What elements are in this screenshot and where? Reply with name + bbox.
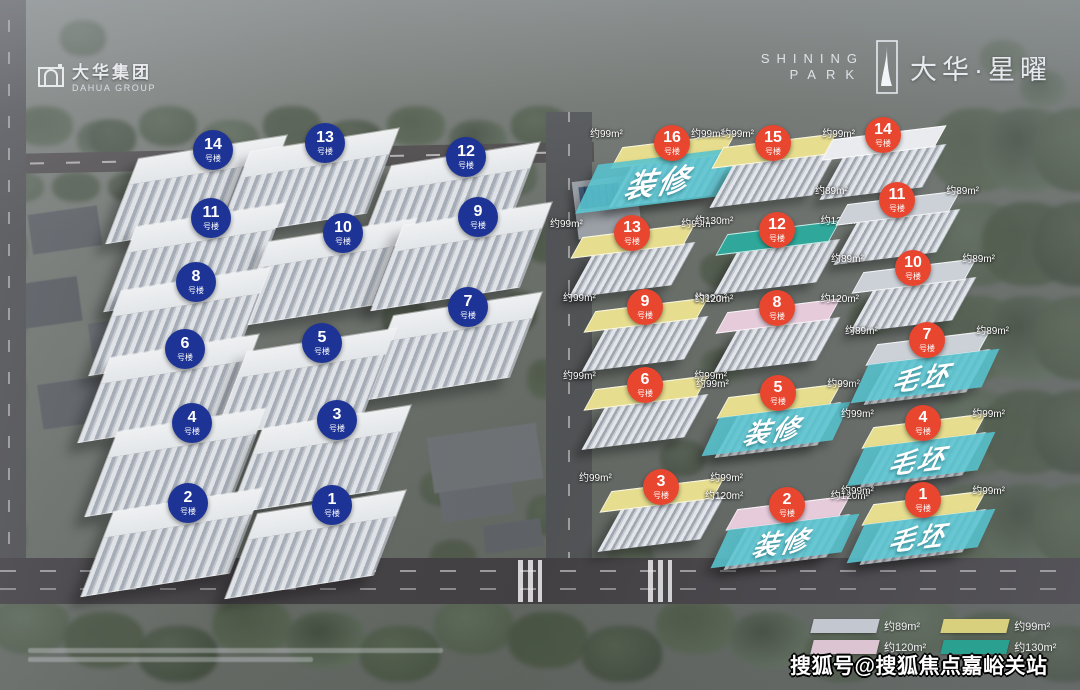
area-label-left: 约99m² (579, 469, 612, 484)
sail-emblem-icon (876, 40, 898, 94)
site-plan-aerial-image: 14号楼13号楼12号楼11号楼10号楼9号楼8号楼7号楼6号楼5号楼4号楼3号… (0, 0, 1080, 690)
building-4-marker: 4号楼 (172, 403, 212, 443)
dahua-logo-en: DAHUA GROUP (72, 83, 156, 93)
legend-item-1: 约89m² (812, 618, 926, 634)
dahua-logo-cn: 大华集团 (72, 58, 156, 83)
building-13-marker: 13号楼 (614, 215, 650, 251)
dahua-logo-icon (38, 63, 64, 89)
building-13-marker: 13号楼 (305, 123, 345, 163)
legend-swatch (940, 619, 1009, 633)
area-label-left: 约99m² (550, 215, 583, 230)
building-8-marker: 8号楼 (759, 290, 795, 326)
building-12-marker: 12号楼 (446, 137, 486, 177)
dahua-group-logo: 大华集团 DAHUA GROUP (38, 58, 156, 93)
shining-park-en-line2: PARK (761, 67, 864, 83)
building-6-marker: 6号楼 (165, 329, 205, 369)
building-16-marker: 16号楼 (654, 125, 690, 161)
legend-swatch (810, 619, 879, 633)
building-2-marker: 2号楼 (769, 487, 805, 523)
building-3-marker: 3号楼 (643, 469, 679, 505)
shining-park-logo: SHINING PARK 大华·星曜 (761, 40, 1052, 94)
legend-label: 约89m² (884, 618, 920, 634)
building-5-marker: 5号楼 (760, 375, 796, 411)
project-name-cn: 大华·星曜 (910, 48, 1052, 87)
area-label-left: 约99m² (590, 125, 623, 140)
building-11-marker: 11号楼 (879, 182, 915, 218)
building-7-marker: 7号楼 (909, 322, 945, 358)
building-12-marker: 12号楼 (759, 212, 795, 248)
building-4-marker: 4号楼 (905, 405, 941, 441)
building-5-marker: 5号楼 (302, 323, 342, 363)
legend-label: 约99m² (1014, 618, 1050, 634)
building-1-marker: 1号楼 (312, 485, 352, 525)
building-11-marker: 11号楼 (191, 198, 231, 238)
building-6-marker: 6号楼 (627, 367, 663, 403)
building-7-marker: 7号楼 (448, 287, 488, 327)
shining-park-en-line1: SHINING (761, 51, 864, 67)
area-label-left: 约130m² (695, 212, 733, 227)
building-14-marker: 14号楼 (193, 130, 233, 170)
legend-item-2: 约99m² (942, 618, 1056, 634)
building-15-marker: 15号楼 (755, 125, 791, 161)
building-3-marker: 3号楼 (317, 400, 357, 440)
building-10-marker: 10号楼 (895, 250, 931, 286)
building-10-marker: 10号楼 (323, 213, 363, 253)
building-markers-layer: 14号楼13号楼12号楼11号楼10号楼9号楼8号楼7号楼6号楼5号楼4号楼3号… (0, 0, 1080, 690)
building-9-marker: 9号楼 (627, 289, 663, 325)
building-9-marker: 9号楼 (458, 197, 498, 237)
building-2-marker: 2号楼 (168, 483, 208, 523)
building-14-marker: 14号楼 (865, 117, 901, 153)
sohu-watermark: 搜狐号@搜狐焦点嘉峪关站 (790, 650, 1047, 680)
building-8-marker: 8号楼 (176, 262, 216, 302)
building-1-marker: 1号楼 (905, 482, 941, 518)
